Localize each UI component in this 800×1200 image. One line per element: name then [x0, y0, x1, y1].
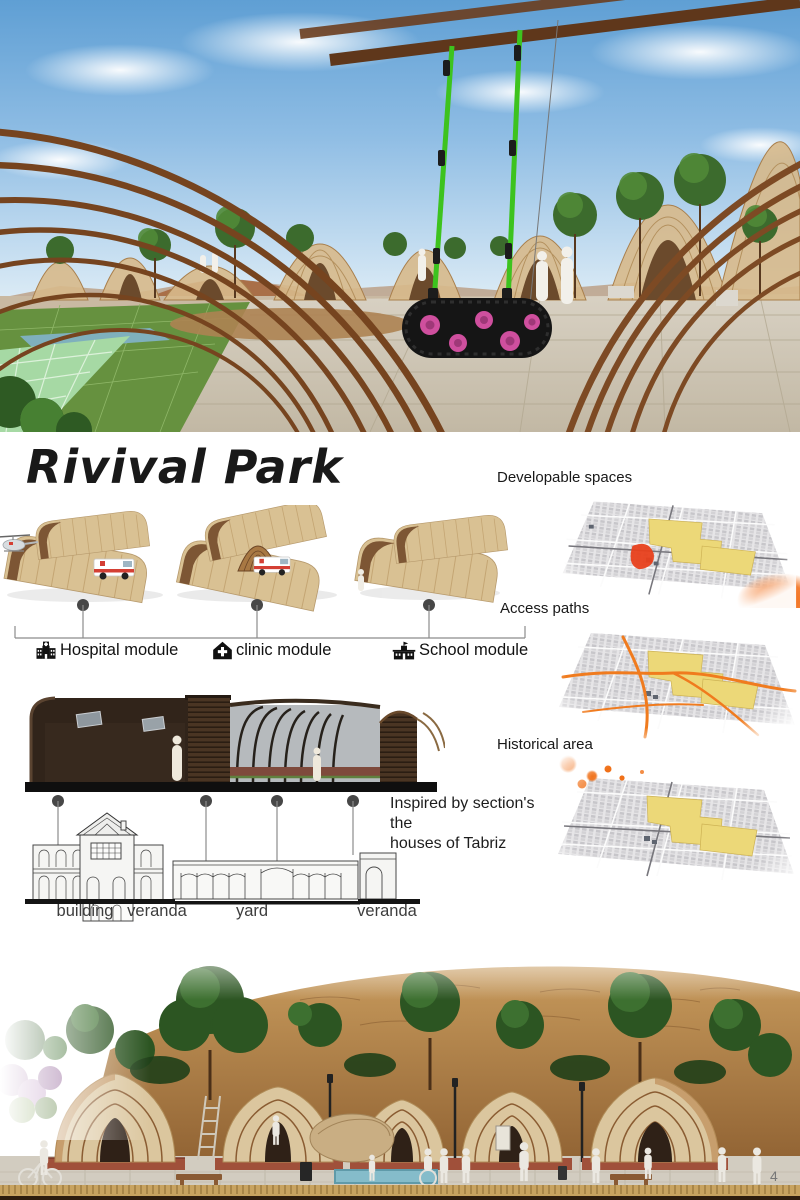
school-icon [392, 641, 416, 660]
section-base [25, 782, 437, 792]
map-label-historical: Historical area [497, 736, 593, 753]
note-line-2: houses of Tabriz [390, 834, 560, 854]
module-label-school: School module [392, 641, 528, 660]
map-label-access: Access paths [500, 600, 589, 617]
module-label-clinic: clinic module [212, 641, 331, 660]
page-title: Rivival Park [26, 440, 343, 494]
page-number: 4 [770, 1168, 778, 1184]
poster: Rivival Park [0, 0, 800, 1200]
note-line-1: Inspired by section's the [390, 794, 560, 834]
modules-figure [0, 505, 530, 641]
module-label-text: School module [419, 641, 528, 660]
bottom-strip [0, 1196, 800, 1200]
module-label-hospital: Hospital module [35, 641, 178, 660]
label-veranda-1: veranda [127, 902, 187, 921]
module-connectors [15, 599, 525, 638]
map-label-developable: Developable spaces [497, 469, 632, 486]
modern-section-render [25, 695, 445, 792]
map-developable-spaces [553, 486, 800, 608]
clinic-icon [212, 641, 233, 660]
village-render [0, 930, 800, 1200]
section-label-row: building veranda yard veranda [0, 902, 500, 926]
hospital-icon [35, 641, 57, 660]
map-historical-area [550, 752, 800, 902]
module-label-text: clinic module [236, 641, 331, 660]
dry-grass-strip [0, 1185, 800, 1197]
section-figure [25, 693, 445, 925]
rock [310, 1114, 394, 1162]
label-yard: yard [236, 902, 268, 921]
map-access-paths [553, 617, 800, 743]
hero-render [0, 0, 800, 432]
section-note: Inspired by section's the houses of Tabr… [390, 794, 560, 854]
label-building: building [57, 902, 114, 921]
module-label-row: Hospital module clinic module School mod… [0, 641, 530, 669]
label-veranda-2: veranda [357, 902, 417, 921]
module-label-text: Hospital module [60, 641, 178, 660]
hospital-module-render [0, 509, 150, 602]
